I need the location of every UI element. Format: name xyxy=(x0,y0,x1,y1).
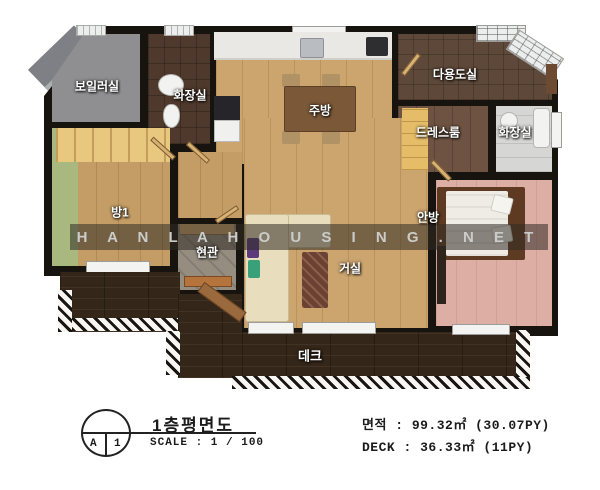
living-window-left xyxy=(248,322,294,334)
deck-railing-left-bottom xyxy=(72,318,178,331)
dining-chair xyxy=(282,131,300,144)
room-label-master: 안방 xyxy=(417,209,439,226)
room1-closet xyxy=(56,128,170,162)
room-label-boiler: 보일러실 xyxy=(75,78,119,95)
sheet-letter: A xyxy=(90,438,97,450)
watermark-text: H A N L A H O U S I N G . N E T xyxy=(77,229,542,246)
deck-railing-right xyxy=(516,330,530,377)
bath2-bathtub xyxy=(533,108,550,148)
deck-railing-bottom xyxy=(232,376,530,389)
backdoor-sill xyxy=(546,64,557,94)
bath1-toilet xyxy=(163,104,180,128)
living-rug xyxy=(302,252,328,308)
sheet-symbol-divider xyxy=(105,434,107,456)
vent-window-boiler xyxy=(76,25,106,36)
kitchen-sink xyxy=(300,38,324,58)
dining-chair xyxy=(322,131,340,144)
refrigerator xyxy=(214,96,240,120)
room-label-bath1: 화장실 xyxy=(173,87,206,104)
room-label-bath2: 화장실 xyxy=(498,124,531,141)
refrigerator-lower xyxy=(214,120,240,142)
sofa-cushion-green xyxy=(248,260,260,278)
floorplan-canvas: H A N L A H O U S I N G . N E T 보일러실 화장실… xyxy=(0,0,600,490)
deck-area-text: DECK : 36.33㎡ (11PY) xyxy=(362,436,533,455)
vent-window-bath1 xyxy=(164,25,194,36)
room-label-room1: 방1 xyxy=(111,204,129,221)
bedroom-dresser xyxy=(437,246,446,304)
room-label-living: 거실 xyxy=(339,260,361,277)
deck-main xyxy=(242,332,530,378)
room-label-entrance: 현관 xyxy=(196,244,218,261)
bath2-window xyxy=(551,112,562,148)
plan-title: 1층평면도 xyxy=(152,411,234,436)
room-label-dressroom: 드레스룸 xyxy=(416,124,460,141)
master-window xyxy=(452,324,510,335)
sheet-number: 1 xyxy=(114,438,121,450)
living-window-right xyxy=(302,322,376,334)
kitchen-stove xyxy=(366,37,388,56)
deck-railing-left xyxy=(58,290,72,332)
deck-railing-mid xyxy=(166,331,180,375)
room-label-deck: 데크 xyxy=(298,346,322,365)
floor-area-text: 면적 : 99.32㎡ (30.07PY) xyxy=(362,414,550,433)
room-label-kitchen: 주방 xyxy=(309,102,331,119)
watermark-band: H A N L A H O U S I N G . N E T xyxy=(70,224,548,250)
room-label-utility: 다용도실 xyxy=(433,66,477,83)
plan-scale: SCALE : 1 / 100 xyxy=(150,437,264,449)
